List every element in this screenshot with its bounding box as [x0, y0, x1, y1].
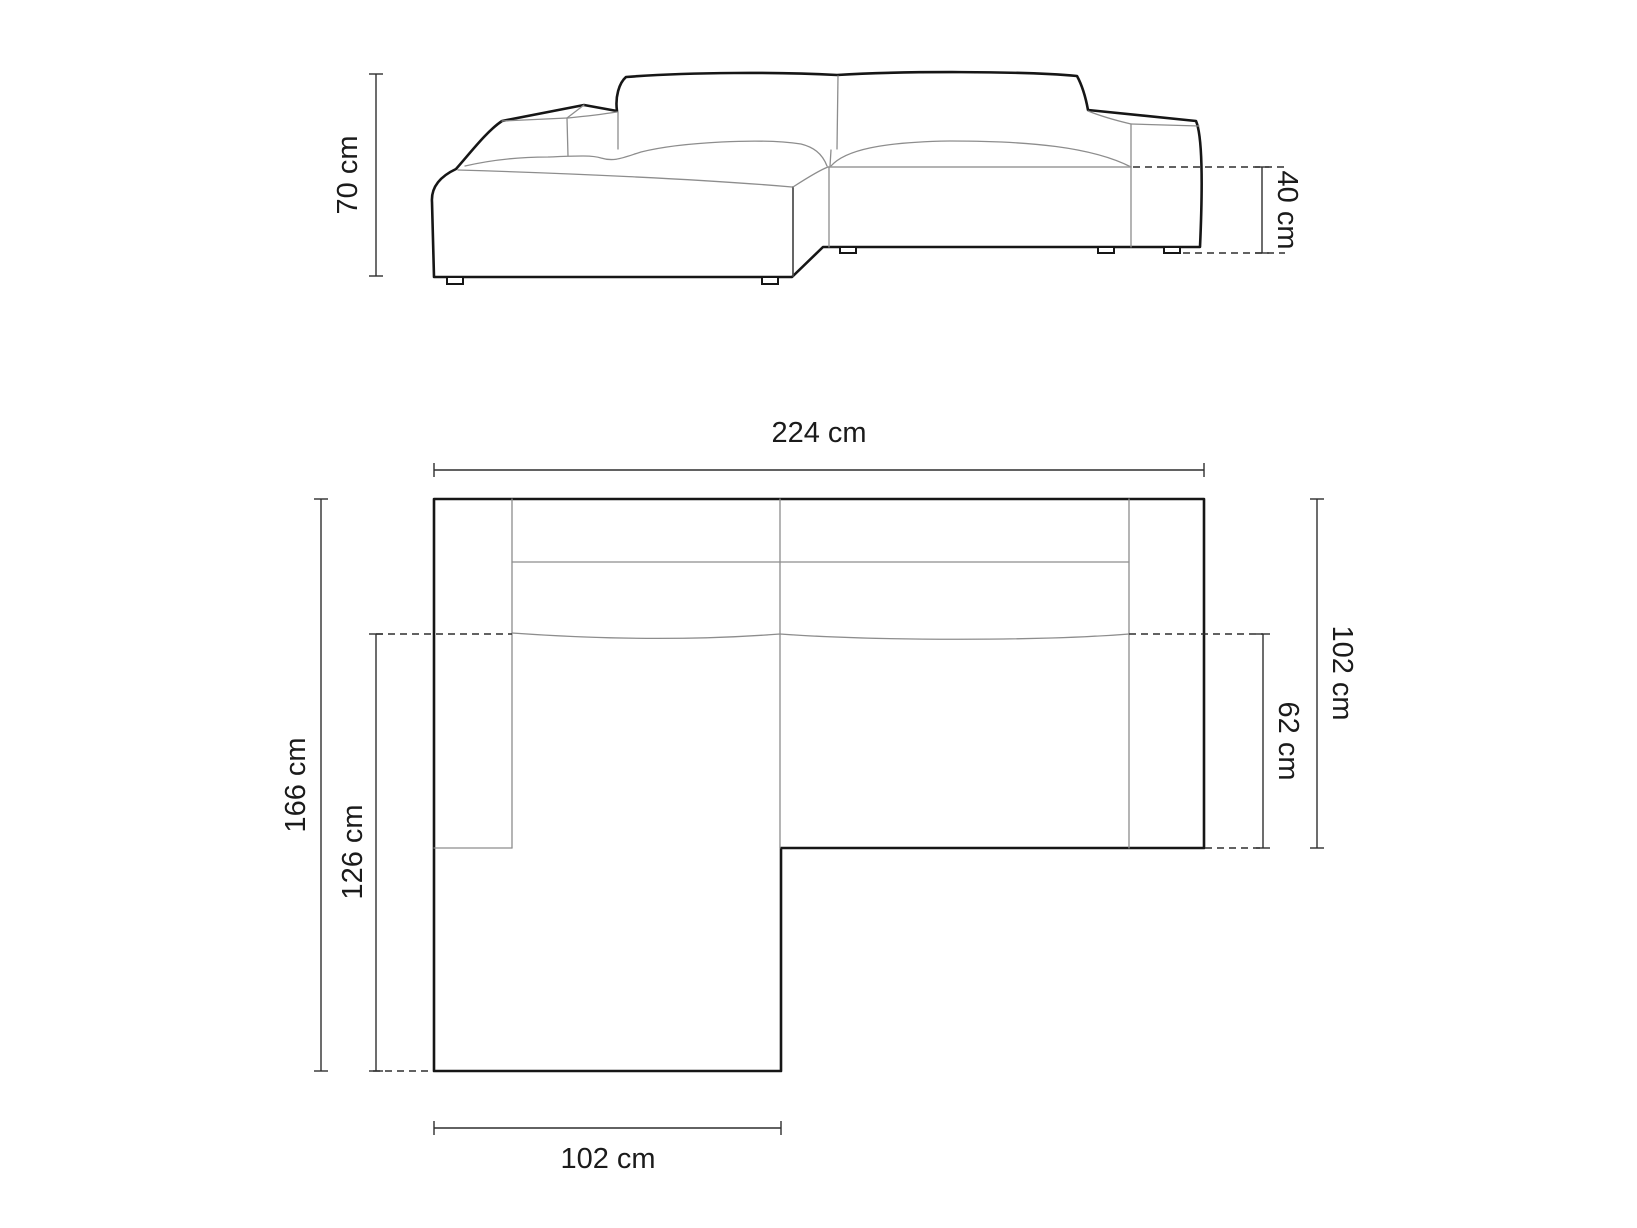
right-depth-dimension: 102 cm: [1310, 499, 1358, 848]
height-dimension-label: 70 cm: [332, 136, 364, 215]
chaise-depth-dimension: 126 cm: [337, 634, 383, 1071]
width-dimension-label: 224 cm: [771, 417, 866, 449]
right-depth-label: 102 cm: [1326, 625, 1358, 720]
sofa-dimension-drawing: 70 cm 40 cm 224 cm: [0, 0, 1637, 1228]
chaise-foot-left: [447, 277, 463, 284]
chaise-depth-label: 126 cm: [337, 804, 369, 899]
sofa-silhouette: [432, 72, 1202, 277]
seat-depth-label: 62 cm: [1272, 702, 1304, 781]
top-plan-view: 224 cm 166 cm 126 cm 102 cm: [280, 417, 1358, 1175]
width-dimension: 224 cm: [434, 417, 1204, 477]
chaise-foot-right: [762, 277, 778, 284]
total-depth-label: 166 cm: [280, 737, 312, 832]
total-depth-dimension: 166 cm: [280, 499, 328, 1071]
height-dimension: 70 cm: [332, 74, 383, 276]
base-foot-middle: [1098, 247, 1114, 253]
chaise-width-label: 102 cm: [560, 1143, 655, 1175]
chaise-width-dimension: 102 cm: [434, 1121, 781, 1175]
seat-height-dimension-label: 40 cm: [1271, 171, 1303, 250]
seat-depth-dimension: 62 cm: [1256, 634, 1304, 848]
technical-drawing-canvas: 70 cm 40 cm 224 cm: [0, 0, 1637, 1228]
front-elevation-view: 70 cm 40 cm: [332, 72, 1303, 284]
base-foot-right: [1164, 247, 1180, 253]
base-foot-left: [840, 247, 856, 253]
plan-outline: [434, 499, 1204, 1071]
